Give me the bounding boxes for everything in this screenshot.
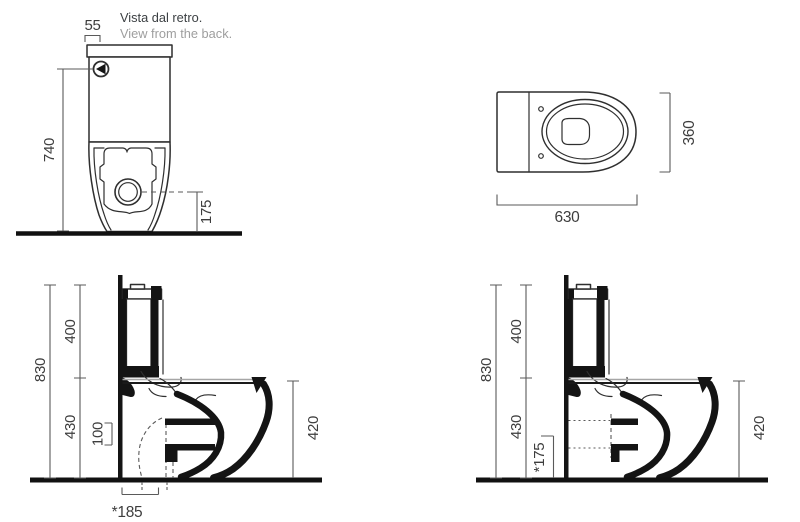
- back-view: Vista dal retro. View from the back. 55 …: [16, 10, 242, 234]
- dim-740: 740: [41, 69, 93, 231]
- trap-channel-lower: [611, 444, 638, 462]
- dim-420-right: 420: [733, 381, 768, 478]
- dim-400-430-right: 400 430: [508, 285, 532, 478]
- dim-label-185: *185: [112, 504, 143, 521]
- dim-label-430-right: 430: [508, 415, 525, 439]
- trap-channel-upper: [611, 419, 638, 426]
- s-trap-outer-dashed: [139, 418, 162, 478]
- toilet-section: [476, 275, 768, 482]
- dim-label-400-left: 400: [62, 319, 79, 343]
- bowl-outer-contour: [89, 142, 170, 232]
- p-trap-hidden-lines: [569, 414, 612, 458]
- dim-label-100: 100: [90, 422, 107, 446]
- dim-175-back: 175: [191, 192, 215, 231]
- dim-line-185: [122, 488, 159, 495]
- dim-830-right: 830: [478, 285, 502, 478]
- side-view-wall-outlet: 830 400 430 *175 420: [476, 275, 768, 482]
- bowl-back-outline: [89, 142, 170, 232]
- dim-label-55: 55: [84, 17, 100, 34]
- technical-drawing-sheet: Vista dal retro. View from the back. 55 …: [0, 0, 800, 522]
- top-view: 630 360: [497, 92, 698, 226]
- dim-label-400-right: 400: [508, 319, 525, 343]
- dim-line-740: [57, 69, 93, 231]
- dim-line-420-left: [287, 381, 299, 478]
- floor-outlet-stub-dashed: [142, 482, 167, 491]
- dim-line-400-430-left: [74, 285, 86, 478]
- dim-label-830-right: 830: [478, 358, 495, 382]
- dim-420-left: 420: [287, 381, 322, 478]
- dim-label-630: 630: [555, 209, 581, 226]
- dim-label-420-right: 420: [751, 416, 768, 440]
- dim-line-420-right: [733, 381, 745, 478]
- dim-label-430-left: 430: [62, 415, 79, 439]
- trap-channel-upper: [165, 419, 215, 426]
- dim-100: 100: [90, 422, 113, 446]
- dim-185: *185: [112, 488, 159, 522]
- caption-italian: Vista dal retro.: [120, 10, 202, 25]
- dim-label-175-back: 175: [198, 200, 215, 224]
- wc-dimension-drawing: Vista dal retro. View from the back. 55 …: [0, 0, 800, 522]
- dim-830-left: 830: [32, 285, 56, 478]
- dim-630: 630: [497, 195, 637, 227]
- dim-label-740: 740: [41, 138, 58, 162]
- cistern-lid-back: [87, 45, 172, 57]
- dim-bracket-55: [85, 36, 100, 43]
- dim-400-430-left: 400 430: [62, 285, 86, 478]
- dim-label-830-left: 830: [32, 358, 49, 382]
- dim-360: 360: [660, 93, 699, 172]
- side-view-floor-outlet: 830 400 430 100 420 *185: [30, 275, 322, 521]
- caption-english: View from the back.: [120, 26, 232, 41]
- dim-line-360: [660, 93, 671, 172]
- dim-175-wall-outlet: *175: [531, 436, 554, 478]
- dim-label-420-left: 420: [305, 416, 322, 440]
- dim-label-360: 360: [681, 120, 698, 146]
- dim-line-630: [497, 195, 637, 206]
- dim-label-175-wall-outlet: *175: [531, 443, 548, 473]
